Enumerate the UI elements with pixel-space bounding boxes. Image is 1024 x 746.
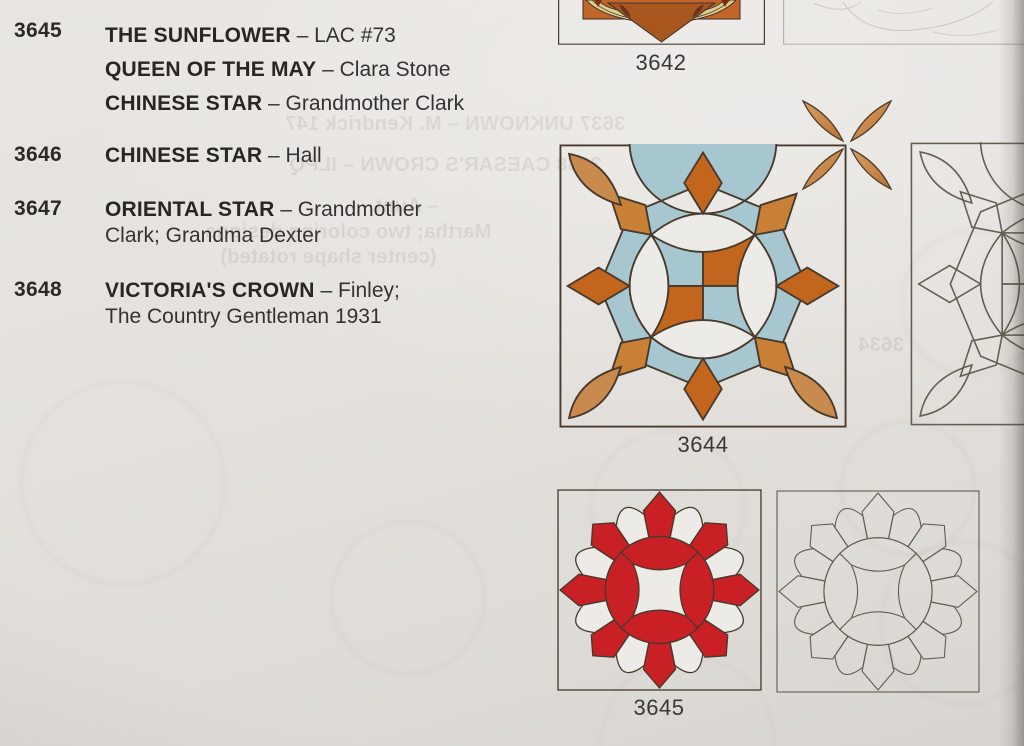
bleedthrough-text: 3634: [858, 334, 904, 357]
entry-number: 3647: [14, 197, 62, 221]
pattern-line: The Country Gentleman 1931: [105, 304, 515, 330]
pattern-attribution: – Grandmother Clark: [262, 92, 464, 115]
quilt-block-3645-colored: [557, 489, 762, 691]
quilt-block-sketch-faint: [783, 0, 1024, 46]
bleedthrough-text: (center shape rotated): [220, 246, 437, 269]
quilt-block-3644-uncolored-partial: [910, 142, 1024, 426]
bleedthrough-circle: [330, 520, 486, 676]
pattern-line: ORIENTAL STAR – Grandmother: [105, 197, 515, 223]
figure-label-3645: 3645: [604, 695, 714, 721]
pattern-name: QUEEN OF THE MAY: [105, 58, 316, 81]
pattern-name: VICTORIA'S CROWN: [105, 279, 315, 302]
bleedthrough-text: – Aunt: [375, 195, 438, 218]
pattern-name: CHINESE STAR: [105, 92, 262, 115]
pattern-name: CHINESE STAR: [105, 144, 262, 167]
entry-number: 3646: [14, 143, 62, 167]
pattern-name: THE SUNFLOWER: [105, 24, 291, 47]
quilt-block-3645-uncolored: [776, 490, 980, 693]
entry-number: 3648: [14, 278, 62, 302]
entry-number: 3645: [14, 19, 62, 43]
pattern-attribution: – LAC #73: [291, 24, 396, 47]
bleedthrough-text: Martha; two coloring designs: [205, 221, 491, 244]
figure-label-3642: 3642: [606, 50, 716, 76]
pattern-line: VICTORIA'S CROWN – Finley;: [105, 278, 515, 304]
flower-petal: [803, 101, 843, 141]
pattern-attribution: – Clara Stone: [316, 58, 450, 81]
book-page: 3637 UNKNOWN – M. Kendrick 147 3638 CAES…: [0, 0, 1024, 746]
pattern-attribution: – Finley;: [315, 279, 400, 302]
flower-petal: [803, 149, 843, 189]
figure-label-3644: 3644: [648, 432, 758, 458]
pattern-attribution: The Country Gentleman 1931: [105, 305, 382, 328]
pattern-line: QUEEN OF THE MAY – Clara Stone: [105, 53, 515, 87]
flower-petal: [851, 101, 891, 141]
pattern-name: ORIENTAL STAR: [105, 198, 274, 221]
flower-petal: [851, 149, 891, 189]
quilt-block-3642-partial: [558, 0, 765, 46]
bleedthrough-circle: [20, 380, 226, 586]
bleedthrough-text: 3637 UNKNOWN – M. Kendrick 147: [285, 113, 625, 136]
corner-flower-motif: [787, 85, 907, 205]
bleedthrough-text: 3638 CAESAR'S CROWN – ILPQ: [289, 154, 602, 177]
pattern-line: THE SUNFLOWER – LAC #73: [105, 19, 515, 53]
